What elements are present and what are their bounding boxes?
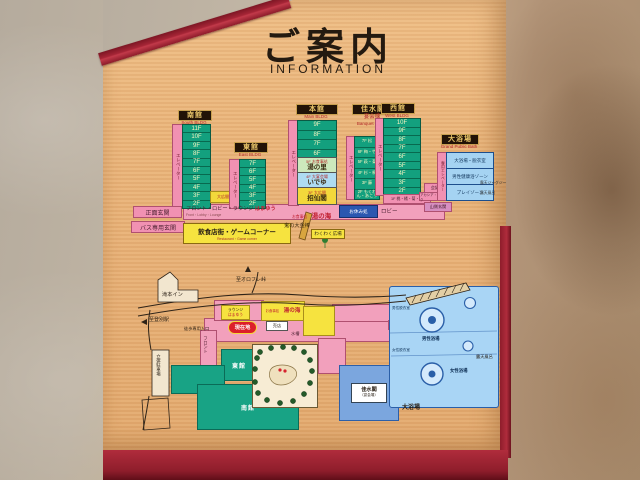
note-outdoor-jacuzzi: 露天ジャグジー bbox=[480, 181, 506, 186]
map-takimoto-inn: 滝本イン bbox=[162, 293, 183, 299]
map-aquarium: 水槽 bbox=[291, 331, 299, 337]
bus-entrance-label: バス専用玄関 bbox=[131, 221, 185, 233]
wakuwaku-plaza-chip: わくわく広場 bbox=[311, 229, 345, 239]
map-dining-label: お食事処 湯の海 bbox=[264, 305, 302, 314]
floor-cell: 7F bbox=[298, 140, 336, 150]
photo-of-information-board: ご案内 INFORMATION 南館 South BLDG エレベーター 11F… bbox=[0, 0, 640, 480]
floor-cell: 7F bbox=[183, 159, 210, 167]
map-womens-locker: 女性脱衣室 bbox=[392, 348, 410, 354]
red-frame-right-edge bbox=[500, 226, 511, 458]
front-lobby-english: Front・Lobby・Lounge bbox=[186, 212, 221, 217]
floor-cell: 8F bbox=[298, 131, 336, 141]
ribbon-east-en: East BLDG bbox=[234, 152, 266, 157]
map-to-orofure-pass: 至オロフレ峠 bbox=[236, 278, 266, 284]
ribbon-grand-bath-en: Grand Public Bath bbox=[438, 144, 480, 149]
floor-cell: 10F bbox=[384, 119, 420, 128]
floor-cell: 3F bbox=[384, 179, 420, 188]
map-womens-bath: 女性浴場 bbox=[450, 368, 468, 374]
west-floor-list: 10F9F8F7F6F5F4F3F2F bbox=[383, 118, 421, 196]
dining-prefix: お食事処 bbox=[292, 215, 307, 219]
restaurant-row-label: 飲食店街・ゲームコーナー bbox=[198, 226, 276, 236]
dining-name: 湯の海 bbox=[284, 308, 301, 314]
floor-cell: 9F bbox=[183, 142, 210, 150]
map-mens-locker: 男性脱衣室 bbox=[392, 306, 410, 312]
floor-cell: 6F bbox=[240, 168, 265, 176]
map-to-noboribetsu-station: 至登別駅 bbox=[149, 318, 169, 324]
oni-club-label: 鬼の大金棒 bbox=[284, 222, 310, 229]
map-lounge-chip: ラウンジ はまゆう bbox=[221, 305, 250, 320]
map-shop-box: 売店 bbox=[266, 321, 288, 331]
lobby-label: ロビー bbox=[381, 207, 398, 215]
note-open-air-bath: 露天風呂 bbox=[480, 191, 495, 196]
dining-prefix: お食事処 bbox=[266, 309, 280, 313]
restaurant-row: 飲食店街・ゲームコーナー Restaurant・Game corner bbox=[183, 223, 291, 244]
facility-name: 招仙閣 bbox=[307, 195, 327, 202]
floor-cell: 4F bbox=[384, 170, 420, 179]
map-parking: 立体駐車場 bbox=[156, 354, 162, 376]
map-dining-block-2 bbox=[303, 306, 335, 336]
floor-cell: 10F bbox=[183, 133, 210, 141]
facility-name: 湯の里 bbox=[307, 164, 327, 171]
floor-cell: 3F bbox=[183, 192, 210, 200]
facility-name: いでゆ bbox=[307, 179, 326, 186]
floor-cell: 8F bbox=[183, 150, 210, 158]
floor-cell: 9F bbox=[298, 121, 336, 131]
floor-cell: 4F bbox=[183, 184, 210, 192]
restaurant-row-english: Restaurant・Game corner bbox=[217, 236, 257, 241]
floor-cell: 8F bbox=[384, 136, 420, 145]
map-you-are-here: 現在地 bbox=[229, 322, 256, 333]
map-kasui-chip: 佳水閣 （宴会場） bbox=[351, 383, 387, 403]
floor-cell: 5F bbox=[384, 162, 420, 171]
floor-cell: 6F bbox=[183, 167, 210, 175]
floor-cell: 3F bbox=[240, 193, 265, 201]
map-front-desk: フロント bbox=[203, 336, 209, 354]
map-grand-bath-label: 大浴場 bbox=[402, 406, 420, 412]
map-north-wing bbox=[332, 304, 394, 322]
floor-cell: 7F bbox=[384, 145, 420, 154]
map-mens-bath: 男性浴場 bbox=[422, 336, 440, 342]
bath-zone-cell: 大浴場・脱衣室 bbox=[447, 153, 493, 169]
lounge-name: はまゆう bbox=[255, 206, 276, 212]
map-open-air-bath: 露天風呂 bbox=[476, 354, 493, 360]
floor-cell: 4F bbox=[240, 185, 265, 193]
floor-cell: 6F bbox=[384, 153, 420, 162]
east-floor-list: 7F6F5F4F3F2F bbox=[239, 159, 266, 209]
rest-area-box: お休み処 bbox=[339, 205, 378, 218]
floor-cell: 11F bbox=[183, 125, 210, 133]
main-entrance-label: 正面玄関 bbox=[133, 206, 182, 218]
floor-cell: 5F bbox=[183, 175, 210, 183]
page-subtitle: INFORMATION bbox=[253, 62, 403, 76]
kasui-sub: （宴会場） bbox=[360, 393, 378, 399]
main-3f-great-hall: 3F 大広間 招仙閣 bbox=[297, 187, 337, 205]
map-walk-entrance: 徒歩専用入口 bbox=[184, 326, 209, 332]
front-lobby-label: フロント・ロビー・ラウンジ はまゆう bbox=[186, 205, 276, 212]
floor-cell: 9F bbox=[384, 128, 420, 137]
dining-hall-label: お食事処 湯の海 bbox=[292, 205, 331, 223]
lounge-name: はまゆう bbox=[228, 313, 243, 317]
main-upper-floors: 9F8F7F6F bbox=[297, 120, 337, 159]
ribbon-main-en: Main BLDG bbox=[296, 114, 336, 119]
south-floor-list: 11F10F9F8F7F6F5F4F3F2F bbox=[182, 124, 211, 209]
floor-cell: 5F bbox=[240, 176, 265, 184]
floor-cell: 7F bbox=[240, 160, 265, 168]
side-entrance-box: 山側玄関 bbox=[424, 202, 452, 212]
dining-name: 湯の海 bbox=[312, 212, 332, 220]
map-garden-courtyard bbox=[252, 344, 318, 408]
red-frame-bottom-edge bbox=[103, 450, 508, 480]
map-grand-bath-bldg bbox=[389, 286, 499, 408]
